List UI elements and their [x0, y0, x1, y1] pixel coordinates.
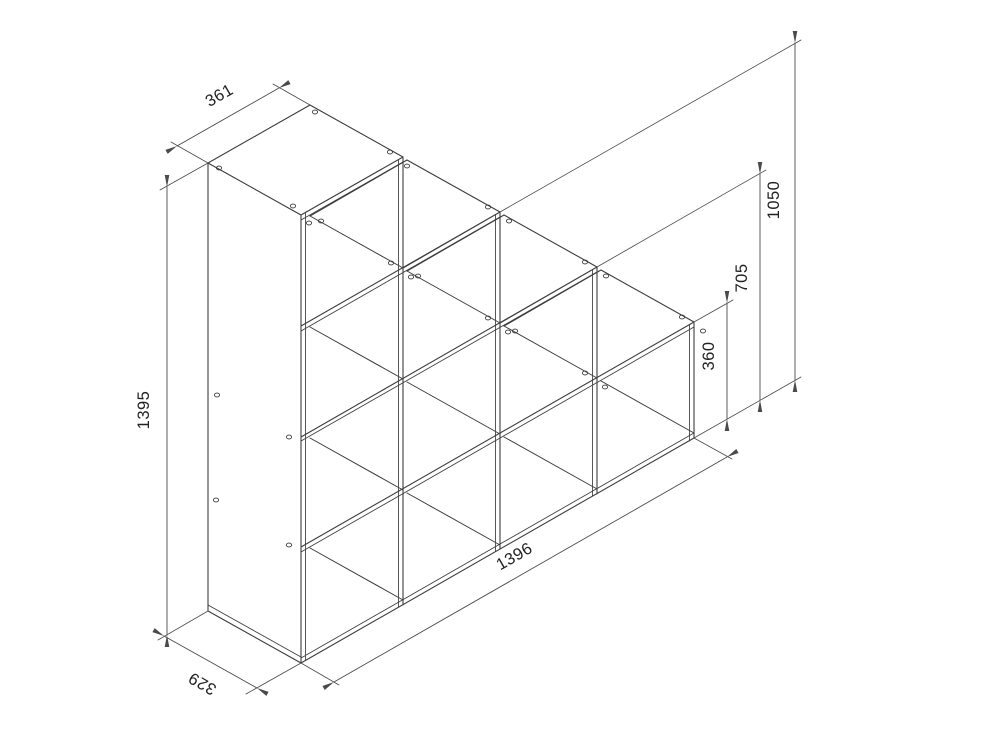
isometric-shelf-drawing: 361 1395 329 1396 1050 705 360 [0, 0, 982, 736]
dim-label-1050: 1050 [765, 181, 783, 220]
dim-label-361: 361 [202, 81, 236, 111]
dim-line-1396 [334, 457, 727, 682]
dim-label-360: 360 [700, 341, 718, 370]
dimension-labels: 361 1395 329 1396 1050 705 360 [135, 81, 783, 699]
cam-hole-icons [213, 110, 705, 547]
dim-label-1395: 1395 [135, 391, 153, 430]
shelf-unit-outline [208, 105, 694, 663]
dim-label-705: 705 [733, 263, 751, 292]
cube-interior-edges [310, 216, 694, 600]
panel-thickness-edges [208, 160, 694, 661]
dim-label-329: 329 [185, 668, 219, 698]
